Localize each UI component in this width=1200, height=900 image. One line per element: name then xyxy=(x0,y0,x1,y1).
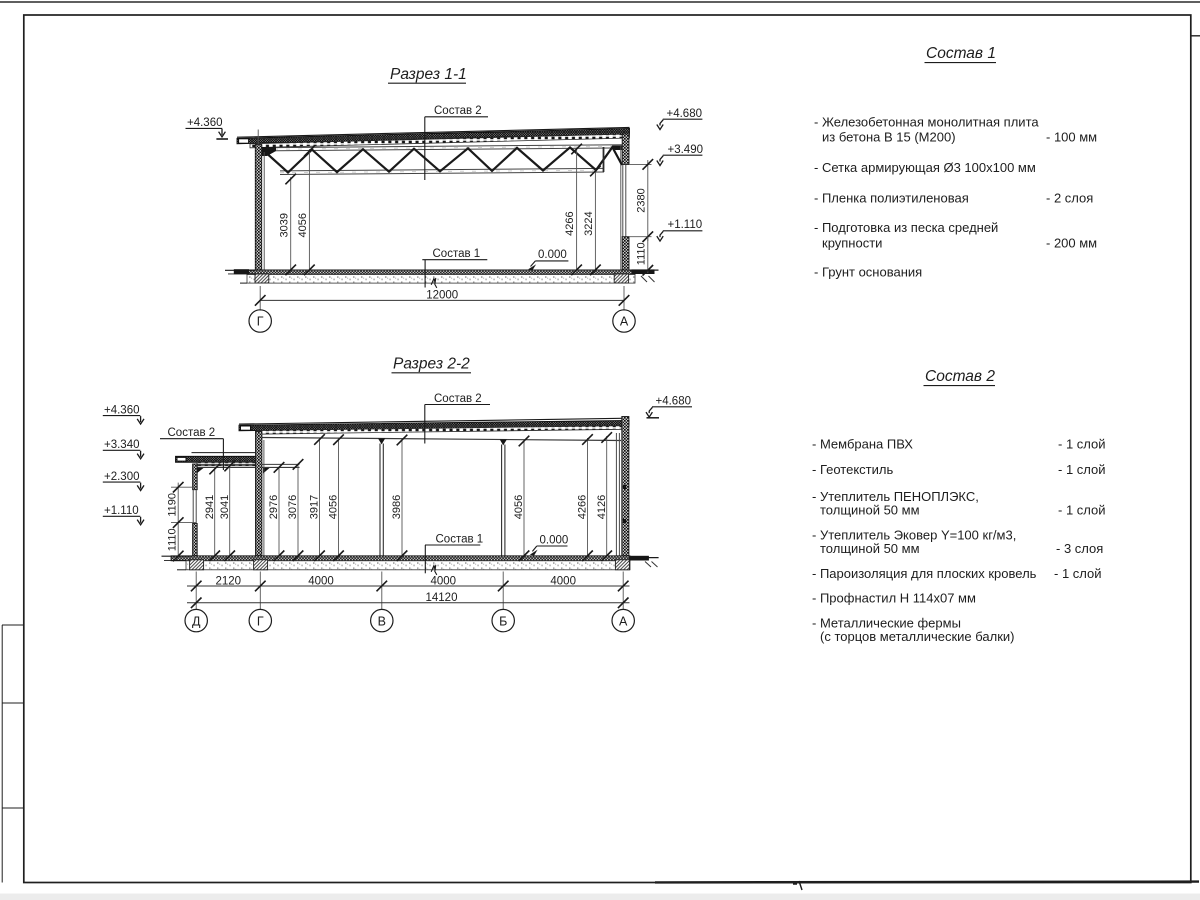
svg-text:+1.110: +1.110 xyxy=(668,219,703,231)
svg-text:из бетона В 15 (М200): из бетона В 15 (М200) xyxy=(822,130,956,145)
svg-text:4266: 4266 xyxy=(577,495,589,519)
svg-text:4000: 4000 xyxy=(431,575,457,587)
svg-text:2976: 2976 xyxy=(268,495,280,519)
svg-text:14120: 14120 xyxy=(426,592,458,604)
svg-text:- 200 мм: - 200 мм xyxy=(1046,235,1097,250)
svg-text:Разрез 2-2: Разрез 2-2 xyxy=(393,356,470,373)
svg-text:(с торцов металлические балки): (с торцов металлические балки) xyxy=(820,629,1015,644)
svg-text:4126: 4126 xyxy=(596,495,608,519)
svg-text:Состав 2: Состав 2 xyxy=(925,368,995,385)
svg-text:+2.300: +2.300 xyxy=(104,471,140,483)
svg-text:3041: 3041 xyxy=(219,495,231,519)
svg-text:толщиной 50 мм: толщиной 50 мм xyxy=(820,541,920,556)
svg-text:12000: 12000 xyxy=(426,290,458,302)
svg-text:Состав 1: Состав 1 xyxy=(926,45,996,62)
svg-text:Состав 1: Состав 1 xyxy=(433,248,481,260)
svg-text:- 1 слой: - 1 слой xyxy=(1058,502,1106,517)
svg-text:Состав 2: Состав 2 xyxy=(434,105,482,117)
svg-text:3076: 3076 xyxy=(287,495,299,519)
svg-text:- Подготовка из песка средней: - Подготовка из песка средней xyxy=(814,220,998,235)
svg-text:- Железобетонная монолитная п: - Железобетонная монолитная плита xyxy=(814,115,1039,130)
svg-text:0.000: 0.000 xyxy=(538,249,567,261)
svg-text:Г: Г xyxy=(257,315,264,329)
svg-text:Состав 2: Состав 2 xyxy=(168,427,216,439)
svg-text:4000: 4000 xyxy=(550,575,576,587)
svg-text:крупности: крупности xyxy=(822,235,882,250)
svg-text:+4.360: +4.360 xyxy=(187,117,223,129)
svg-text:0.000: 0.000 xyxy=(540,534,569,546)
svg-text:Состав 2: Состав 2 xyxy=(434,393,482,405)
svg-text:Б: Б xyxy=(499,614,507,628)
svg-text:+4.360: +4.360 xyxy=(104,405,140,417)
svg-text:1190: 1190 xyxy=(166,493,178,517)
svg-text:Д: Д xyxy=(192,614,201,628)
svg-text:4056: 4056 xyxy=(513,495,525,519)
svg-text:- Сетка армирующая Ø3 100х100: - Сетка армирующая Ø3 100х100 мм xyxy=(814,160,1036,175)
svg-text:Состав 1: Состав 1 xyxy=(436,533,484,545)
svg-text:1110: 1110 xyxy=(166,528,178,551)
svg-text:3986: 3986 xyxy=(391,495,403,519)
svg-text:1110: 1110 xyxy=(635,242,647,265)
svg-text:А: А xyxy=(620,315,629,329)
svg-text:+3.490: +3.490 xyxy=(668,144,704,156)
svg-text:2941: 2941 xyxy=(204,495,216,519)
svg-text:- 1 слой: - 1 слой xyxy=(1058,437,1106,452)
svg-text:- 1 слой: - 1 слой xyxy=(1058,462,1106,477)
svg-text:- 100 мм: - 100 мм xyxy=(1046,130,1097,145)
svg-text:Разрез 1-1: Разрез 1-1 xyxy=(390,66,467,83)
svg-text:+3.340: +3.340 xyxy=(104,439,140,451)
svg-text:4056: 4056 xyxy=(328,495,340,519)
svg-text:- 2 слоя: - 2 слоя xyxy=(1046,191,1093,206)
svg-text:- Пленка полиэтиленовая: - Пленка полиэтиленовая xyxy=(814,191,969,206)
svg-text:+1.110: +1.110 xyxy=(104,505,139,517)
svg-text:2120: 2120 xyxy=(216,575,242,587)
svg-text:В: В xyxy=(378,614,386,628)
svg-text:3917: 3917 xyxy=(309,495,321,519)
svg-text:+4.680: +4.680 xyxy=(667,108,703,120)
svg-text:- Геотекстиль: - Геотекстиль xyxy=(812,462,893,477)
svg-text:- Пароизоляция для плоских кро: - Пароизоляция для плоских кровель xyxy=(812,566,1037,581)
svg-text:- Грунт основания: - Грунт основания xyxy=(814,265,922,280)
svg-text:3039: 3039 xyxy=(278,213,290,237)
svg-text:2380: 2380 xyxy=(635,188,647,212)
svg-text:- Профнастил Н 114х07 мм: - Профнастил Н 114х07 мм xyxy=(812,591,976,606)
svg-text:4266: 4266 xyxy=(564,211,576,235)
svg-text:- 1 слой: - 1 слой xyxy=(1054,566,1102,581)
svg-text:3224: 3224 xyxy=(583,211,595,235)
svg-text:4000: 4000 xyxy=(308,575,334,587)
svg-text:4056: 4056 xyxy=(297,213,309,237)
svg-text:- 3 слоя: - 3 слоя xyxy=(1056,541,1103,556)
svg-text:толщиной 50 мм: толщиной 50 мм xyxy=(820,502,920,517)
svg-text:Г: Г xyxy=(257,614,264,628)
svg-text:- Мембрана ПВХ: - Мембрана ПВХ xyxy=(812,437,913,452)
svg-text:А: А xyxy=(619,614,628,628)
svg-text:+4.680: +4.680 xyxy=(656,396,692,408)
